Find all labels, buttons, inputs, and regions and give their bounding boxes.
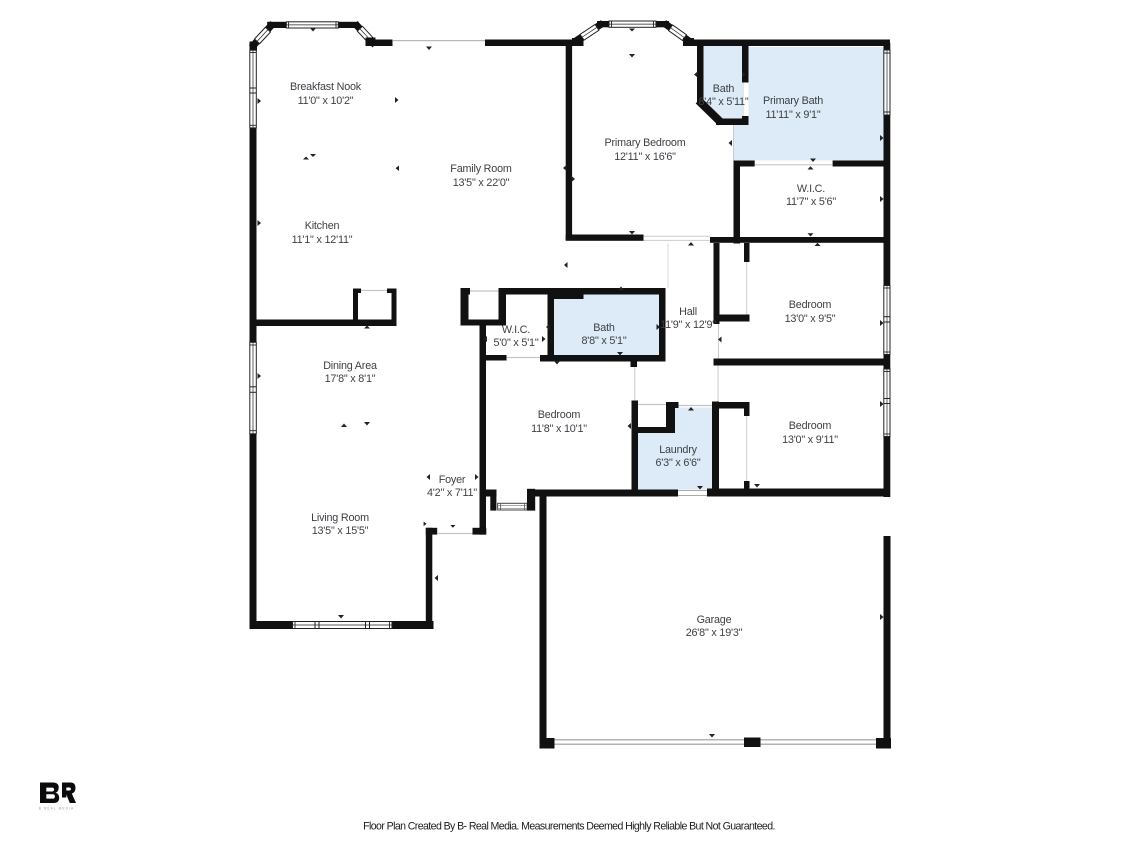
svg-text:17'8" x 8'1": 17'8" x 8'1" [325,373,376,385]
svg-text:6'3" x 6'6": 6'3" x 6'6" [655,457,700,469]
svg-text:Family Room: Family Room [450,163,512,175]
svg-text:11'0" x 10'2": 11'0" x 10'2" [298,95,354,107]
svg-text:8'8" x 5'1": 8'8" x 5'1" [581,335,626,347]
svg-text:Bath: Bath [713,83,735,95]
svg-text:11'1" x 12'11": 11'1" x 12'11" [292,234,353,246]
svg-text:11'11" x 9'1": 11'11" x 9'1" [765,109,820,121]
svg-text:Laundry: Laundry [659,444,697,456]
svg-text:B REAL MEDIA: B REAL MEDIA [39,807,74,811]
svg-text:13'0" x 9'5": 13'0" x 9'5" [785,313,836,325]
svg-text:11'9" x 12'9": 11'9" x 12'9" [660,319,716,331]
svg-text:8'4" x 5'11": 8'4" x 5'11" [698,96,748,108]
svg-text:4'2" x 7'11": 4'2" x 7'11" [427,487,477,499]
svg-text:13'5" x 22'0": 13'5" x 22'0" [453,177,510,189]
svg-text:13'0" x 9'11": 13'0" x 9'11" [782,434,838,446]
svg-text:Bath: Bath [593,322,615,334]
svg-text:Bedroom: Bedroom [789,420,832,432]
svg-text:W.I.C.: W.I.C. [502,324,530,336]
svg-text:Hall: Hall [679,306,697,318]
svg-text:Primary Bedroom: Primary Bedroom [605,137,686,149]
svg-text:Breakfast Nook: Breakfast Nook [290,81,362,93]
svg-text:W.I.C.: W.I.C. [797,183,825,195]
svg-text:Dining Area: Dining Area [323,360,377,372]
svg-text:13'5" x 15'5": 13'5" x 15'5" [312,525,369,537]
svg-text:5'0" x 5'1": 5'0" x 5'1" [493,337,538,349]
svg-text:Foyer: Foyer [439,474,466,486]
svg-text:Kitchen: Kitchen [305,220,340,232]
svg-text:11'8" x 10'1": 11'8" x 10'1" [531,423,587,435]
svg-text:Bedroom: Bedroom [789,299,832,311]
svg-text:Living Room: Living Room [311,512,369,524]
svg-text:12'11" x 16'6": 12'11" x 16'6" [614,151,676,163]
svg-text:Garage: Garage [697,614,732,626]
svg-text:Primary Bath: Primary Bath [763,95,823,107]
svg-text:Bedroom: Bedroom [538,409,581,421]
svg-text:11'7" x 5'6": 11'7" x 5'6" [786,196,836,208]
svg-text:26'8" x 19'3": 26'8" x 19'3" [686,627,743,639]
svg-text:Floor Plan Created By B- Real: Floor Plan Created By B- Real Media. Mea… [363,821,775,833]
